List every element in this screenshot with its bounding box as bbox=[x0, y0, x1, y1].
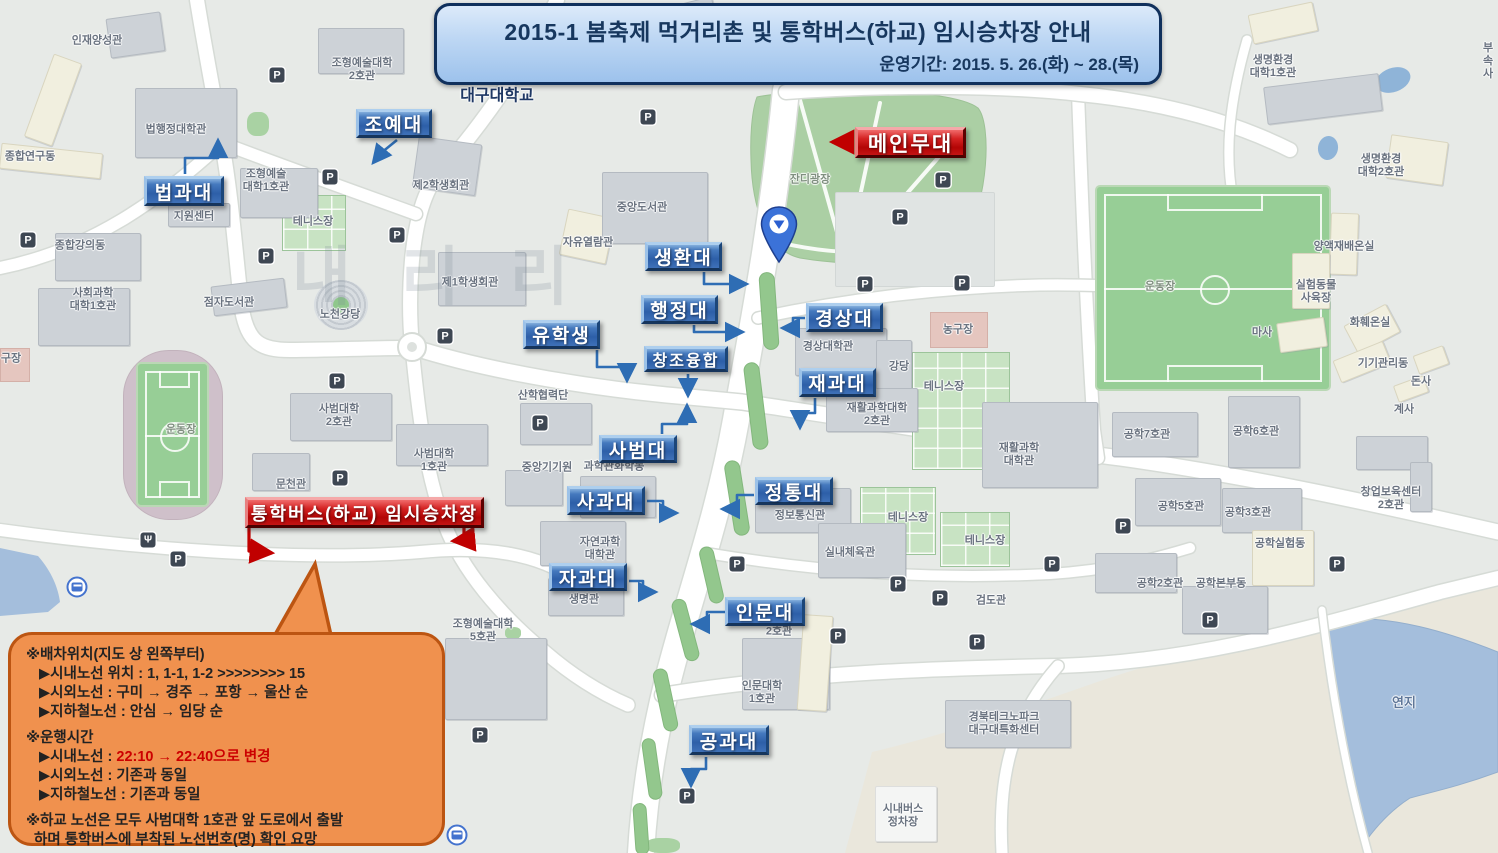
highlight-label: 통학버스(하교) 임시승차장 bbox=[245, 497, 484, 528]
banner-period: 운영기간: 2015. 5. 26.(화) ~ 28.(목) bbox=[451, 50, 1145, 75]
notice-line: ▶시외노선 : 구미 → 경주 → 포항 → 울산 순 bbox=[26, 684, 434, 703]
notice-line: 하며 통학버스에 부착된 노선번호(명) 확인 요망 bbox=[26, 831, 434, 850]
notice-line: ▶지하철노선 : 안심 → 임당 순 bbox=[26, 703, 434, 722]
pointer-arrow bbox=[704, 272, 747, 284]
notice-line: ▶지하철노선 : 기존과 동일 bbox=[26, 786, 434, 805]
college-label: 경상대 bbox=[806, 303, 883, 332]
notice-line: ▶시내노선 위치 : 1, 1-1, 1-2 >>>>>>>> 15 bbox=[26, 665, 434, 684]
highlight-label: 메인무대 bbox=[855, 127, 966, 158]
map-watermark: 내리리 bbox=[292, 226, 619, 318]
pointer-arrow-red bbox=[453, 528, 464, 541]
notice-section: ※배차위치(지도 상 왼쪽부터)▶시내노선 위치 : 1, 1-1, 1-2 >… bbox=[26, 646, 434, 722]
college-label: 사범대 bbox=[599, 435, 677, 463]
pointer-arrow bbox=[692, 612, 726, 624]
pointer-arrow bbox=[782, 318, 805, 328]
college-label: 법과대 bbox=[144, 176, 224, 206]
pointer-arrow bbox=[185, 140, 218, 174]
festival-map-page: PPPPPPPPPPPPPPPPPPPPPPPPPPΨ대구대학교신애학사 3호관… bbox=[0, 0, 1498, 853]
notice-bubble-tail bbox=[252, 558, 342, 642]
notice-line: ※하교 노선은 모두 사범대학 1호관 앞 도로에서 출발 bbox=[26, 812, 434, 831]
pointer-arrow bbox=[800, 398, 815, 428]
notice-text-segment: ▶시내노선 위치 : 1, 1-1, 1-2 >>>>>>>> 15 bbox=[39, 666, 305, 682]
college-label: 행정대 bbox=[641, 295, 718, 324]
pointer-arrow bbox=[694, 325, 743, 332]
college-label: 조예대 bbox=[356, 109, 432, 138]
college-label: 정통대 bbox=[755, 477, 833, 505]
pointer-arrow bbox=[597, 350, 627, 381]
notice-line: ▶시외노선 : 기존과 동일 bbox=[26, 767, 434, 786]
notice-changed-time: 22:10 → 22:40으로 변경 bbox=[116, 749, 270, 765]
banner-title: 2015-1 봄축제 먹거리촌 및 통학버스(하교) 임시승차장 안내 bbox=[451, 13, 1145, 47]
notice-text-segment: ▶지하철노선 : 기존과 동일 bbox=[39, 787, 200, 803]
college-label: 재과대 bbox=[799, 368, 876, 397]
map-pin-icon bbox=[762, 207, 797, 262]
notice-text-segment: ▶지하철노선 : 안심 → 임당 순 bbox=[39, 704, 223, 720]
college-label: 창조융합 bbox=[644, 346, 728, 372]
college-label: 유학생 bbox=[523, 320, 600, 349]
college-label: 생환대 bbox=[645, 242, 722, 271]
notice-text-segment: ※배차위치(지도 상 왼쪽부터) bbox=[26, 647, 205, 663]
notice-text-segment: ※하교 노선은 모두 사범대학 1호관 앞 도로에서 출발 bbox=[26, 813, 343, 829]
college-label: 인문대 bbox=[725, 597, 805, 626]
notice-text: ※배차위치(지도 상 왼쪽부터)▶시내노선 위치 : 1, 1-1, 1-2 >… bbox=[26, 646, 434, 850]
notice-line: ※배차위치(지도 상 왼쪽부터) bbox=[26, 646, 434, 665]
college-label: 공과대 bbox=[689, 725, 769, 755]
pointer-arrow bbox=[629, 581, 656, 592]
notice-text-segment: ▶시외노선 : 구미 → 경주 → 포항 → 울산 순 bbox=[39, 685, 308, 701]
notice-text-segment: ※운행시간 bbox=[26, 730, 93, 746]
pointer-arrow bbox=[691, 757, 706, 786]
notice-section: ※운행시간▶시내노선 : 22:10 → 22:40으로 변경▶시외노선 : 기… bbox=[26, 729, 434, 805]
notice-text-segment: ▶시내노선 : bbox=[39, 749, 116, 765]
notice-line: ▶시내노선 : 22:10 → 22:40으로 변경 bbox=[26, 748, 434, 767]
pointer-arrow bbox=[373, 140, 397, 163]
pointer-arrow bbox=[647, 501, 677, 513]
notice-text-segment: 하며 통학버스에 부착된 노선번호(명) 확인 요망 bbox=[34, 832, 317, 848]
notice-section: ※하교 노선은 모두 사범대학 1호관 앞 도로에서 출발하며 통학버스에 부착… bbox=[26, 812, 434, 850]
title-banner: 2015-1 봄축제 먹거리촌 및 통학버스(하교) 임시승차장 안내 운영기간… bbox=[434, 3, 1162, 85]
notice-line: ※운행시간 bbox=[26, 729, 434, 748]
pointer-arrow bbox=[662, 405, 687, 434]
notice-text-segment: ▶시외노선 : 기존과 동일 bbox=[39, 768, 187, 784]
pointer-arrow-red bbox=[249, 528, 272, 553]
college-label: 사과대 bbox=[567, 486, 645, 515]
pointer-arrow bbox=[722, 495, 754, 509]
college-label: 자과대 bbox=[549, 563, 627, 591]
notice-bubble: ※배차위치(지도 상 왼쪽부터)▶시내노선 위치 : 1, 1-1, 1-2 >… bbox=[8, 632, 445, 846]
